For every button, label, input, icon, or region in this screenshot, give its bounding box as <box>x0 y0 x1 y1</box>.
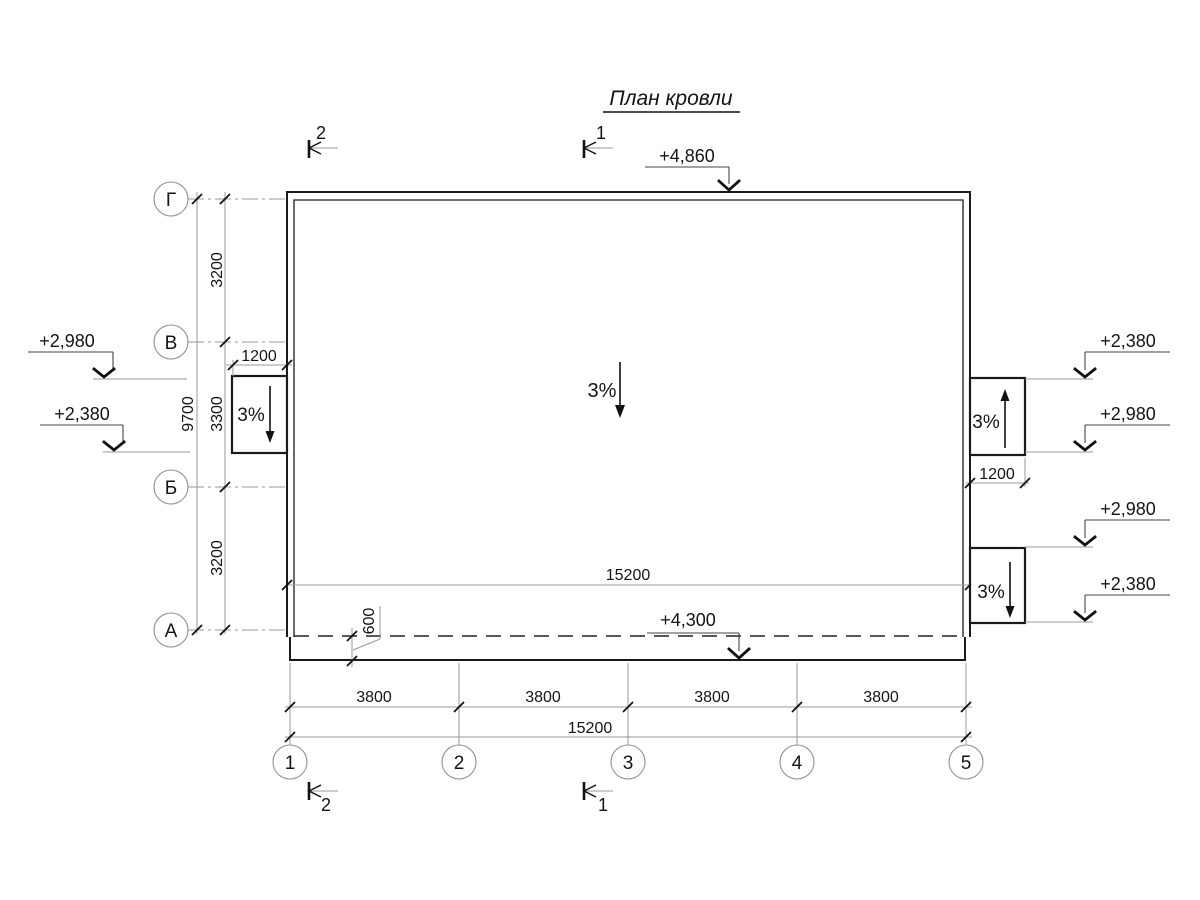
drawing-title: План кровли <box>603 87 740 112</box>
elevation-roof-eave: +4,300 <box>647 610 749 658</box>
section-label: 2 <box>316 123 326 143</box>
elevation-label: +2,980 <box>1100 499 1156 519</box>
dim-left-segment-3: 3200 <box>209 540 226 576</box>
dim-bottom-total: 15200 <box>568 720 613 737</box>
axis-letter-4: А <box>165 621 178 642</box>
section-label: 2 <box>321 795 331 815</box>
canopy-right-upper: 3% <box>970 378 1025 455</box>
axis-number-5: 5 <box>961 753 972 774</box>
elevation-arrow-icon <box>104 442 124 450</box>
elevation-arrow-icon <box>1075 369 1095 377</box>
elevation-arrow-icon <box>1075 537 1095 545</box>
elevation-label: +2,980 <box>1100 404 1156 424</box>
axis-number-1: 1 <box>285 753 296 774</box>
lower-roof-edge <box>290 637 965 660</box>
dim-bottom-segment-3: 3800 <box>694 689 730 706</box>
canopy-right-lower: 3% <box>970 548 1025 623</box>
elevation-right-upper-canopy-top: +2,380 <box>1025 331 1170 379</box>
axis-letter-3: Б <box>165 478 177 499</box>
elevation-label: +4,300 <box>660 610 716 630</box>
roof-plan-drawing: План кровли 15200 3% <box>0 0 1200 900</box>
elevation-label: +2,380 <box>1100 574 1156 594</box>
section-mark-bottom-1: 1 <box>584 782 613 815</box>
elevation-right-lower-canopy-bottom: +2,380 <box>1025 574 1170 622</box>
section-label: 1 <box>596 123 606 143</box>
slope-main: 3% <box>588 380 617 402</box>
section-mark-top-2: 2 <box>309 123 338 158</box>
axis-lines <box>188 199 966 745</box>
slope-right-lower-canopy: 3% <box>977 582 1005 603</box>
dim-left-canopy-width: 1200 <box>241 348 277 365</box>
axis-letter-2: В <box>165 333 178 354</box>
dim-bottom-segment-2: 3800 <box>525 689 561 706</box>
slope-main-mark: 3% <box>588 362 625 418</box>
slope-left-canopy: 3% <box>237 405 265 426</box>
section-label: 1 <box>598 795 608 815</box>
dim-eave-overhang: 600 <box>361 608 378 635</box>
building-outline: 15200 <box>282 192 975 660</box>
axis-letter-1: Г <box>166 190 176 211</box>
right-canopy-dimension: 1200 <box>965 458 1030 488</box>
elevation-roof-top: +4,860 <box>645 146 739 190</box>
dim-roof-length: 15200 <box>606 567 651 584</box>
left-dimension-chain: 3200 3300 3200 9700 <box>180 192 230 635</box>
canopy-left: 3% <box>232 376 287 453</box>
axis-number-3: 3 <box>623 753 634 774</box>
dim-left-segment-2: 3300 <box>209 396 226 432</box>
elevation-label: +2,980 <box>39 331 95 351</box>
elevation-right-lower-canopy-top: +2,980 <box>1025 499 1170 547</box>
dim-bottom-segment-4: 3800 <box>863 689 899 706</box>
elevation-label: +2,380 <box>54 404 110 424</box>
slope-arrow-down-icon <box>615 405 625 418</box>
left-canopy-dimension: 1200 <box>226 348 292 376</box>
dim-right-canopy-width: 1200 <box>979 466 1015 483</box>
axis-number-2: 2 <box>454 753 465 774</box>
page-title: План кровли <box>609 87 733 110</box>
section-mark-bottom-2: 2 <box>309 782 338 815</box>
dim-left-total: 9700 <box>180 396 197 432</box>
elevation-left-lower: +2,380 <box>40 404 190 452</box>
elevation-label: +2,380 <box>1100 331 1156 351</box>
drawing-sheet: План кровли 15200 3% <box>0 0 1200 900</box>
dim-bottom-segment-1: 3800 <box>356 689 392 706</box>
elevation-label: +4,860 <box>659 146 715 166</box>
axis-number-4: 4 <box>792 753 803 774</box>
dim-left-segment-1: 3200 <box>209 252 226 288</box>
elevation-arrow-icon <box>94 369 114 377</box>
elevation-right-upper-canopy-bottom: +2,980 <box>1025 404 1170 452</box>
axis-circles-bottom: 1 2 3 4 5 <box>273 745 983 779</box>
section-mark-top-1: 1 <box>584 123 613 158</box>
elevation-arrow-icon <box>1075 612 1095 620</box>
elevation-arrow-icon <box>1075 442 1095 450</box>
slope-right-upper-canopy: 3% <box>972 412 1000 433</box>
